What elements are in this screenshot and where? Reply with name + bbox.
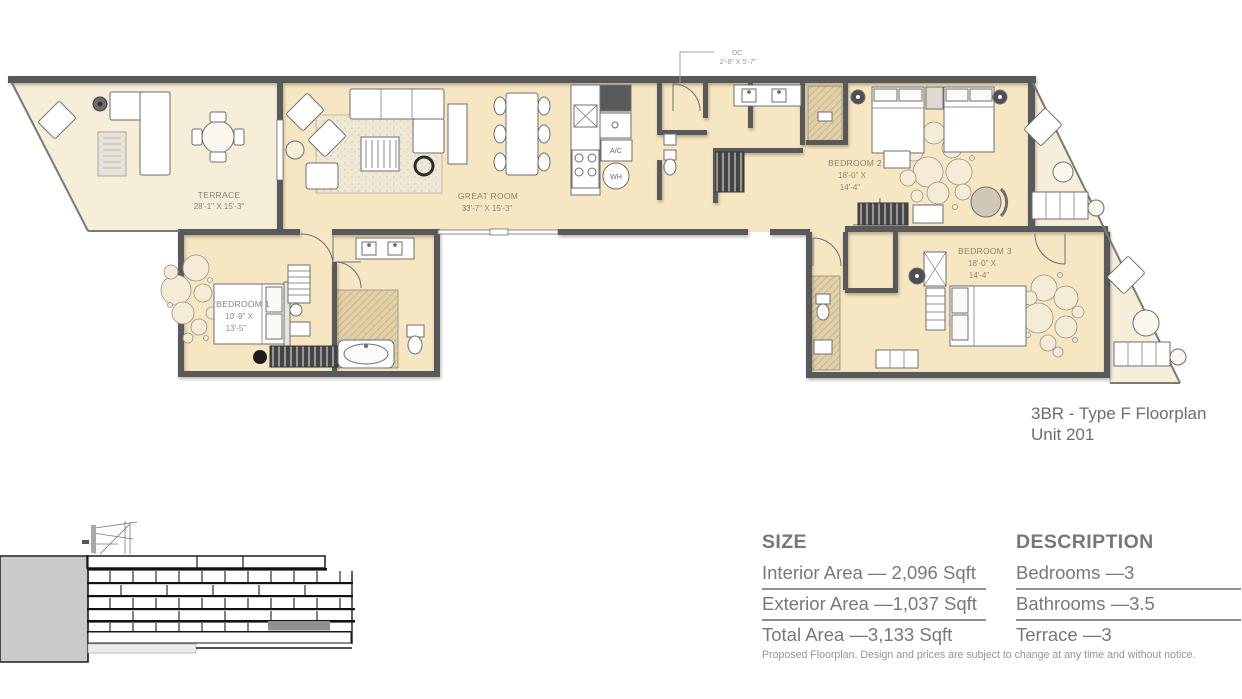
bedroom1-dims2: 13'-5": [226, 324, 247, 333]
rooftop-sketch: [82, 521, 137, 554]
wh-label: WH: [610, 172, 622, 181]
disclaimer-text: Proposed Floorplan. Design and prices ar…: [762, 649, 1195, 661]
bedroom2-dims1: 18'-0" X: [838, 171, 867, 180]
page: OC 2'-8" X 5'-7" TERRACE 28'-1" X 15'-3"…: [0, 0, 1242, 699]
bedroom3-dims2: 14'-4": [969, 271, 990, 280]
plan-title: 3BR - Type F Floorplan Unit 201: [1031, 403, 1206, 445]
description-row-terrace: Terrace —3: [1016, 621, 1241, 650]
size-row-exterior: Exterior Area —1,037 Sqft: [762, 590, 986, 621]
plan-title-line1: 3BR - Type F Floorplan: [1031, 403, 1206, 424]
bedroom3-label: BEDROOM 3: [958, 246, 1012, 256]
terrace-dims: 28'-1" X 15'-3": [194, 202, 245, 211]
description-header: DESCRIPTION: [1016, 531, 1241, 554]
bedroom3-dims1: 18'-0" X: [968, 259, 997, 268]
closet-callout-dims: 2'-8" X 5'-7": [720, 59, 757, 66]
bedroom2-label: BEDROOM 2: [828, 158, 882, 168]
great-room-label: GREAT ROOM: [458, 191, 518, 201]
bedroom1-label: BEDROOM 1: [216, 299, 270, 309]
bedroom2-dims2: 14'-4": [840, 183, 861, 192]
size-row-interior: Interior Area — 2,096 Sqft: [762, 559, 986, 590]
unit-highlight: [268, 621, 330, 631]
closet-callout-name: OC: [732, 50, 743, 57]
elevation-core-block: [0, 556, 88, 662]
description-row-bedrooms: Bedrooms —3: [1016, 559, 1241, 590]
terrace-label: TERRACE: [198, 190, 241, 200]
size-panel: SIZE Interior Area — 2,096 Sqft Exterior…: [762, 531, 986, 650]
floorplan-drawing: OC 2'-8" X 5'-7" TERRACE 28'-1" X 15'-3"…: [0, 0, 1242, 470]
bedroom1-dims1: 10'-9" X: [225, 312, 254, 321]
size-header: SIZE: [762, 531, 986, 554]
size-row-total: Total Area —3,133 Sqft: [762, 621, 986, 650]
elevation-base: [88, 632, 352, 653]
plan-title-line2: Unit 201: [1031, 424, 1206, 445]
great-room-dims: 33'-7" X 15'-3": [462, 204, 513, 213]
description-row-bathrooms: Bathrooms —3.5: [1016, 590, 1241, 621]
ac-label: A/C: [610, 146, 622, 155]
building-elevation: [0, 513, 400, 683]
description-panel: DESCRIPTION Bedrooms —3 Bathrooms —3.5 T…: [1016, 531, 1241, 650]
